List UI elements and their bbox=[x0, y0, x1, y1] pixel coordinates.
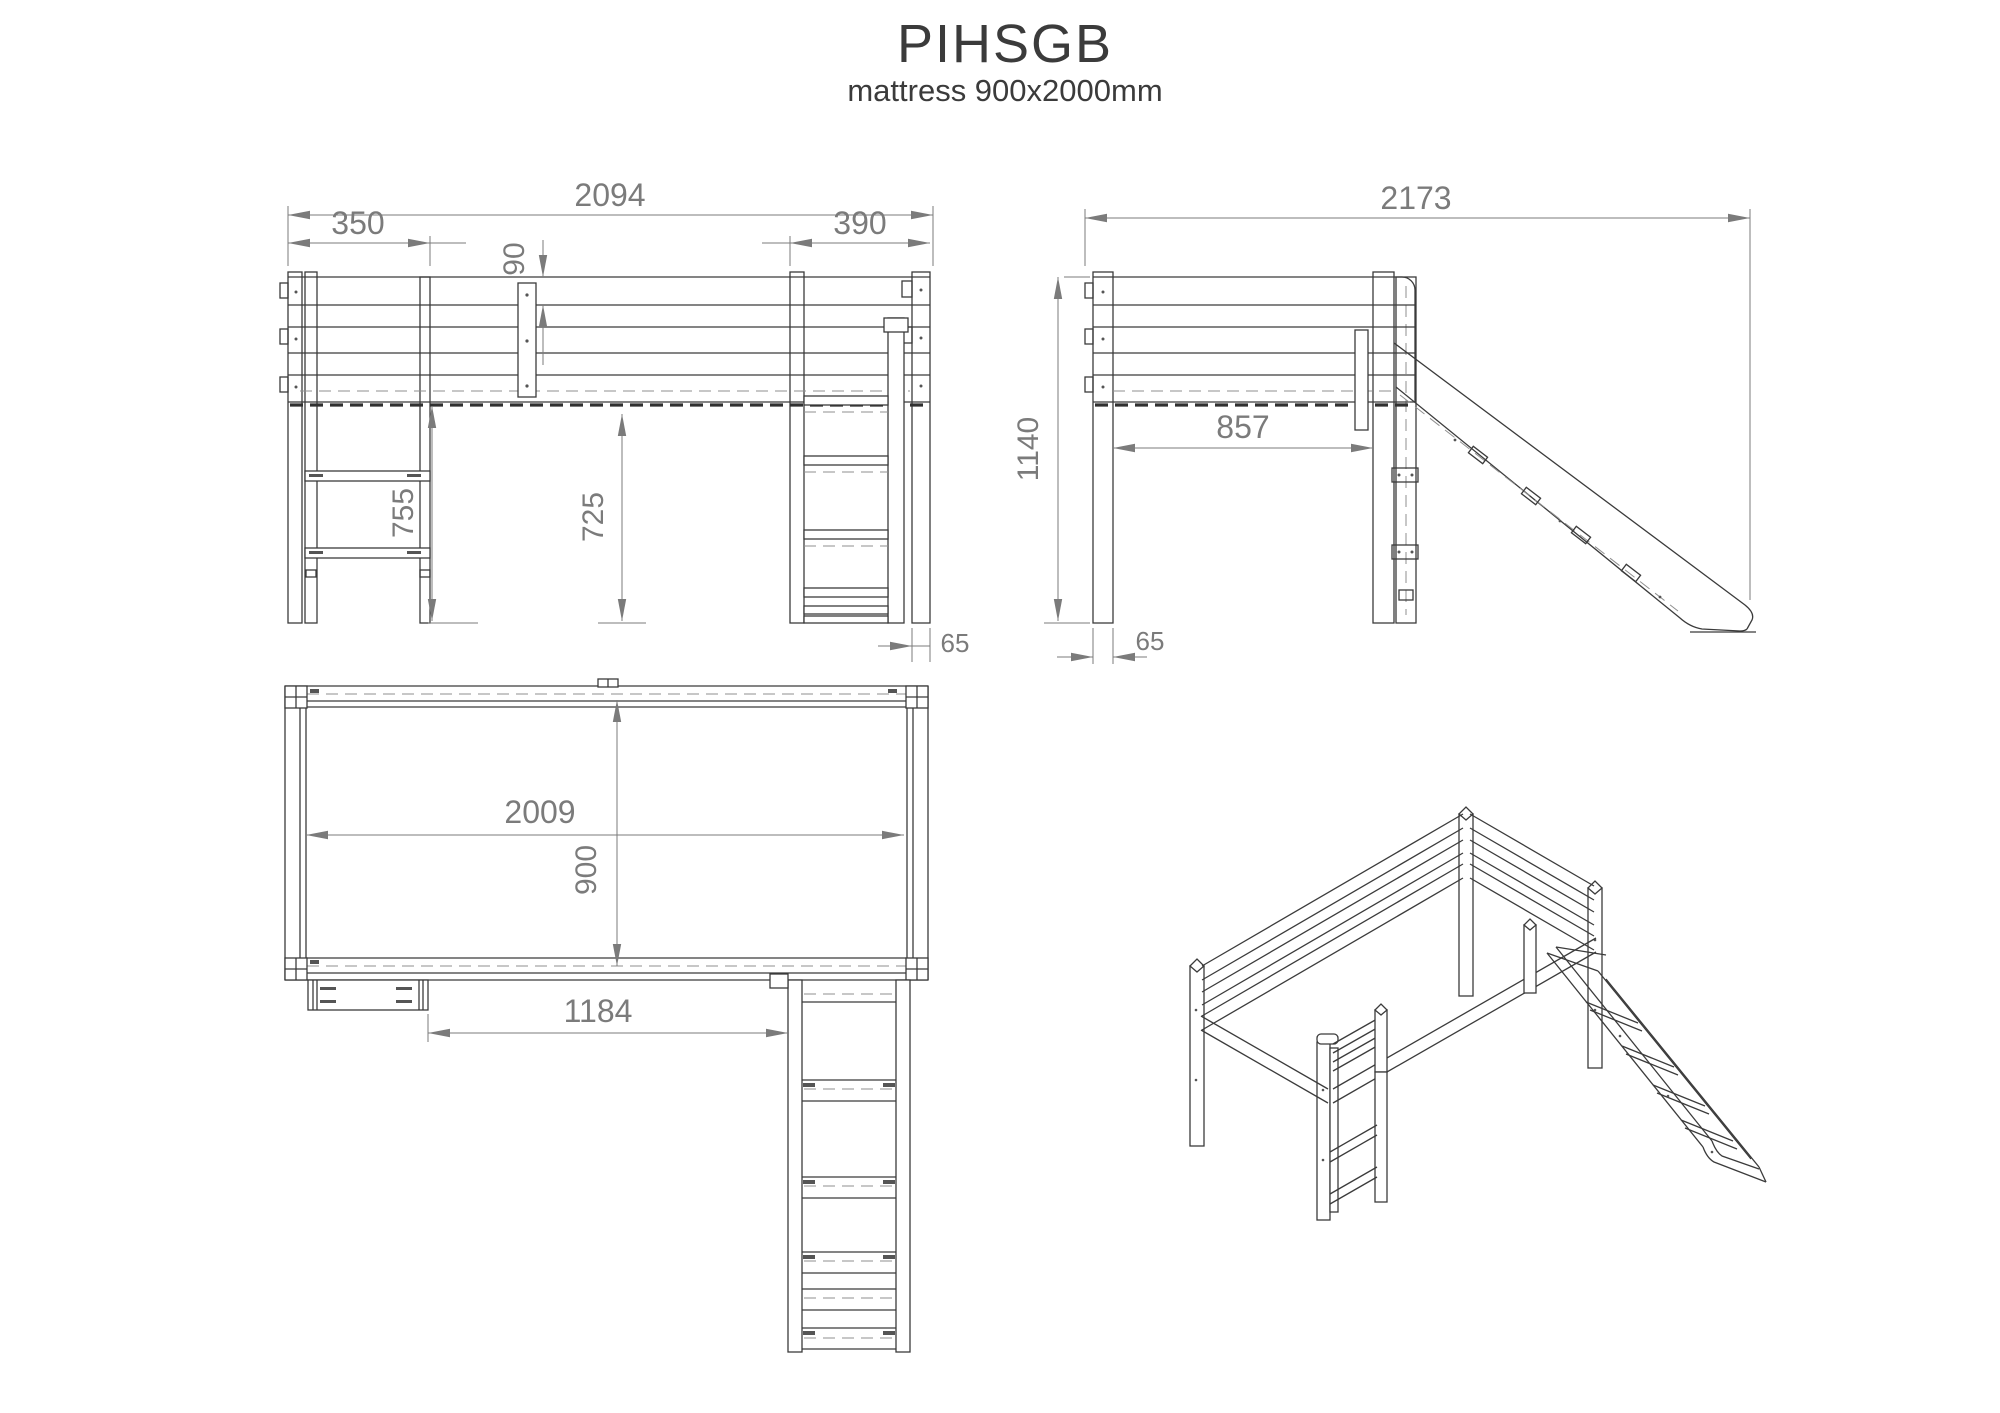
iso-slide bbox=[1547, 947, 1766, 1182]
dim-front-clearance-right: 725 bbox=[577, 492, 610, 542]
technical-drawing: PIHSGB mattress 900x2000mm bbox=[0, 0, 2000, 1413]
drawing-sheet: PIHSGB mattress 900x2000mm bbox=[0, 0, 2000, 1413]
dim-front-slide-bay: 390 bbox=[833, 205, 886, 241]
drawing-subtitle: mattress 900x2000mm bbox=[847, 73, 1162, 108]
dim-side-inner-depth: 857 bbox=[1216, 409, 1269, 445]
dim-side-height: 1140 bbox=[1012, 417, 1045, 482]
dim-top-inner-length: 2009 bbox=[504, 794, 575, 830]
dim-top-inner-width: 900 bbox=[570, 845, 603, 895]
isometric-view bbox=[1190, 807, 1766, 1220]
top-shelf bbox=[308, 980, 428, 1010]
top-slide-projection-ladder bbox=[770, 974, 910, 1352]
top-view: 2009 900 1184 bbox=[285, 679, 928, 1352]
front-view: 2094 350 90 390 755 725 bbox=[280, 177, 969, 662]
dim-top-shelf-to-ladder: 1184 bbox=[564, 993, 633, 1029]
dim-side-post-width: 65 bbox=[1136, 626, 1165, 656]
drawing-title: PIHSGB bbox=[897, 14, 1113, 74]
ladder-rungs bbox=[802, 1080, 896, 1349]
front-slide-projection-ladder bbox=[804, 318, 908, 623]
side-slide bbox=[1394, 343, 1756, 632]
corner-post-sections bbox=[285, 686, 928, 980]
dim-front-shelf-offset: 350 bbox=[331, 205, 384, 241]
side-view: 2173 1140 857 65 bbox=[1012, 180, 1756, 664]
dim-side-overall-depth: 2173 bbox=[1380, 180, 1451, 216]
dim-front-clearance-left: 755 bbox=[387, 488, 420, 538]
dim-front-post-width: 65 bbox=[941, 628, 970, 658]
iso-guard-rails bbox=[1201, 814, 1596, 1202]
top-view-structure bbox=[285, 679, 928, 980]
dim-front-overall-width: 2094 bbox=[574, 177, 645, 213]
front-view-structure bbox=[280, 272, 930, 623]
dim-front-rail-height: 90 bbox=[498, 242, 531, 275]
title-block: PIHSGB mattress 900x2000mm bbox=[847, 14, 1162, 108]
